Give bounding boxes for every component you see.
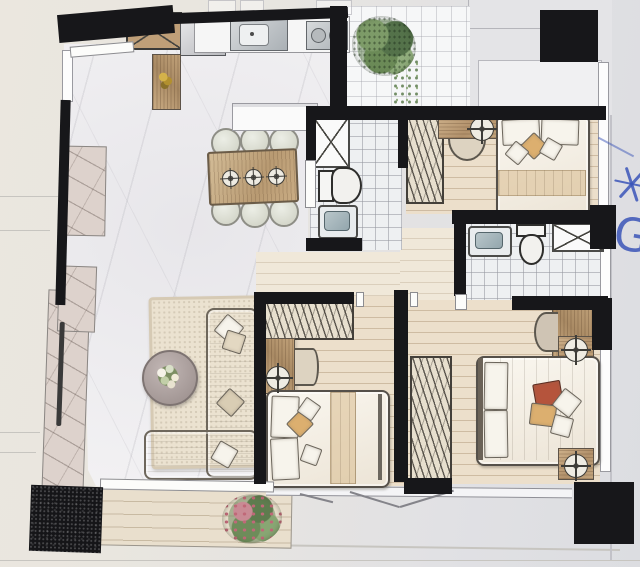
kitchen-sink <box>230 19 288 51</box>
paper-line <box>0 230 50 231</box>
column-bottom-right <box>574 482 634 544</box>
wall-kitchen-balcony <box>330 6 347 116</box>
wall-bath1-bottom <box>306 238 362 251</box>
bed-runner <box>330 392 356 484</box>
bed-foot-line <box>378 394 382 480</box>
pillow <box>270 437 300 480</box>
paper-line <box>0 196 58 197</box>
floor-plan-photo: G <box>0 0 640 567</box>
shower-box-1 <box>312 116 350 168</box>
paper-line <box>0 452 36 453</box>
bedroom2-lamp <box>266 366 290 390</box>
sofa-chaise-section <box>144 430 258 480</box>
master-wardrobe <box>410 356 452 486</box>
bedroom2-door-frame <box>356 292 364 307</box>
column-bottom-left <box>29 485 103 553</box>
bathroom2-sink-basin <box>475 232 503 249</box>
pen-star-mark <box>611 163 640 206</box>
sink-basin <box>239 24 269 46</box>
sink-drain <box>250 32 254 36</box>
bedroom2-chair <box>295 348 319 386</box>
master-door-frame <box>410 292 418 307</box>
wall-bath1-bedroom1 <box>398 108 408 168</box>
wall-bedroom2-top <box>254 292 354 304</box>
bathroom1-sink <box>318 205 358 239</box>
wall-bath1-left <box>306 108 316 160</box>
paper-border-line <box>0 560 640 561</box>
master-headboard <box>478 358 483 460</box>
bathroom2-sink <box>468 226 512 257</box>
master-lamp-bottom <box>564 454 588 478</box>
place-setting <box>268 168 286 186</box>
pillow <box>484 362 509 410</box>
bath1-door <box>305 160 316 208</box>
wall-bedrooms-top <box>306 106 606 120</box>
flower-bouquet <box>152 360 184 392</box>
window <box>62 50 73 102</box>
master-lamp-top <box>564 338 588 362</box>
stove-burner <box>311 28 326 43</box>
bed-runner <box>498 170 586 196</box>
toilet-2-bowl <box>519 234 544 265</box>
hall-floor <box>400 228 460 306</box>
bathroom1-sink-basin <box>324 211 350 231</box>
pillow <box>484 410 509 458</box>
dining-table <box>207 148 299 206</box>
ac-platform <box>478 60 602 112</box>
wall-living-bedroom2 <box>254 294 266 484</box>
bedroom2-wardrobe <box>262 300 354 340</box>
toilet-1-bowl <box>331 167 362 204</box>
place-setting <box>245 169 263 187</box>
paper-line <box>0 432 40 433</box>
bath2-door <box>455 294 467 310</box>
marble-bench-1 <box>63 146 107 237</box>
master-round-mirror <box>534 312 558 352</box>
column-top-right <box>540 10 598 62</box>
wall-right-stub <box>592 298 612 350</box>
wall-bedroom2-master <box>394 290 408 482</box>
wall-bath2-left <box>454 212 466 296</box>
place-setting <box>222 170 240 188</box>
boundary-line <box>468 28 544 29</box>
wall-bottom-block <box>404 478 452 494</box>
wall-bath2-top <box>452 210 608 224</box>
bedroom1-lamp <box>470 117 494 141</box>
console-gold-decor <box>158 70 173 90</box>
